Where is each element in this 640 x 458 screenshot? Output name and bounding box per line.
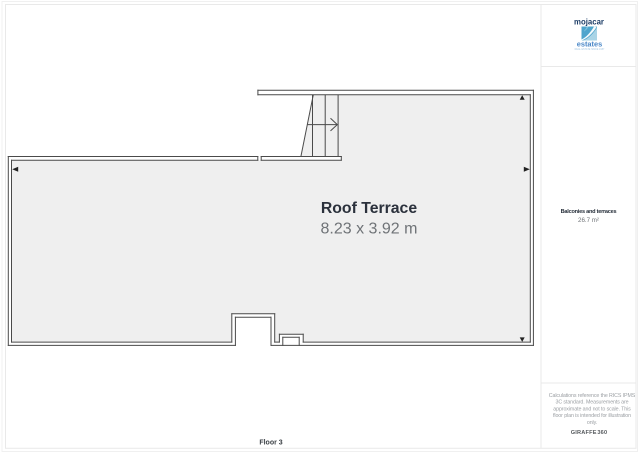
svg-text:Balconies and terraces: Balconies and terraces [561,209,617,215]
svg-text:floor plan is intended for ill: floor plan is intended for illustration [553,413,631,419]
svg-text:REAL ESTATE SINCE 1987: REAL ESTATE SINCE 1987 [575,48,605,51]
svg-text:3C standard. Measurements are: 3C standard. Measurements are [555,400,628,406]
svg-text:mojacar: mojacar [574,18,604,27]
svg-text:Floor 3: Floor 3 [259,440,282,447]
svg-text:only.: only. [587,420,597,426]
svg-text:GIRAFFE 360: GIRAFFE 360 [571,430,608,436]
svg-text:8.23 x 3.92 m: 8.23 x 3.92 m [321,221,418,238]
svg-text:26.7 m²: 26.7 m² [578,217,599,224]
svg-text:approximate and not to scale.: approximate and not to scale. This [553,406,631,412]
svg-text:Calculations reference the RIC: Calculations reference the RICS IPMS [549,393,636,399]
svg-text:Roof Terrace: Roof Terrace [321,200,417,217]
